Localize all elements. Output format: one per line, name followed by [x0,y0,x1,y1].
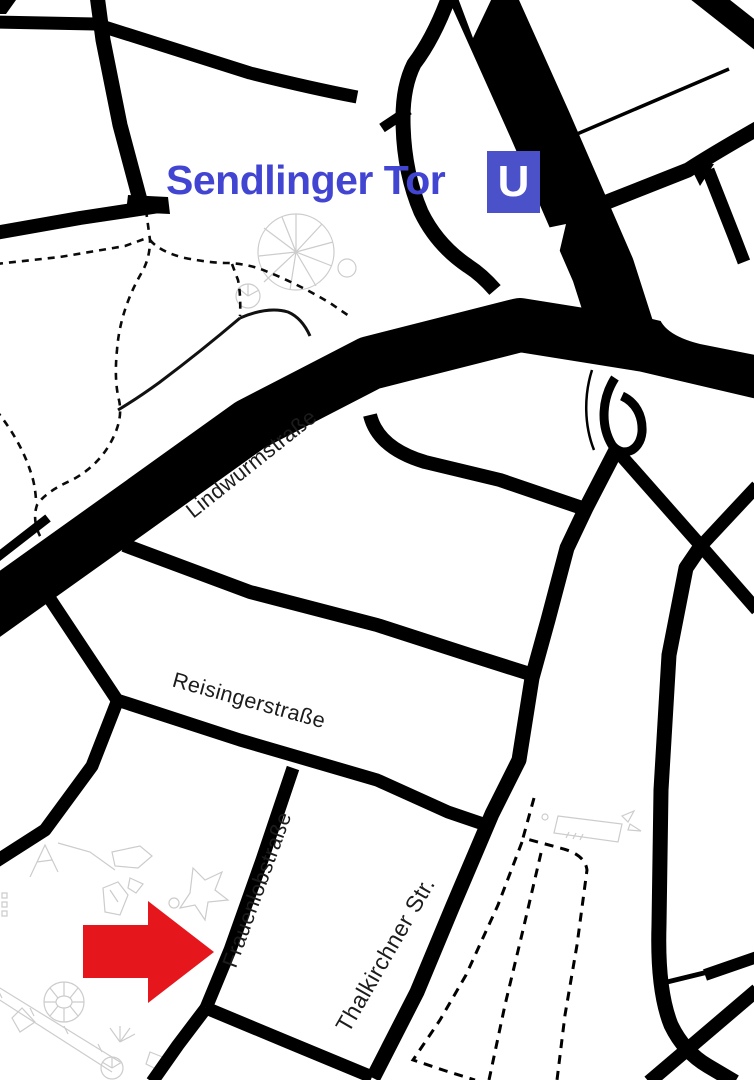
road [705,957,754,975]
map-canvas[interactable]: Sendlinger Tor U Lindwurmstraße Reisinge… [0,0,754,1080]
road-thalkirchner-str [373,450,616,1078]
ubahn-icon: U [487,151,540,213]
road [124,545,530,674]
road [708,170,744,262]
road-thin [663,972,708,983]
arrow-marker-icon [83,901,214,1003]
road [0,0,16,14]
ubahn-letter: U [498,160,530,204]
road [701,486,754,546]
road [701,546,754,610]
road-thin [577,69,729,134]
road [0,22,357,97]
station-name: Sendlinger Tor [166,157,445,203]
road-hook [586,370,642,452]
road [659,546,735,1080]
tree-icon [338,259,356,277]
road [0,702,117,862]
road [698,0,754,42]
road [618,452,701,546]
road [370,415,588,510]
road-junction [126,195,170,214]
station-label: Sendlinger Tor [166,160,445,201]
road [607,126,754,202]
tree-icon [258,214,334,290]
building-sketch [542,811,641,842]
road [152,1008,206,1080]
